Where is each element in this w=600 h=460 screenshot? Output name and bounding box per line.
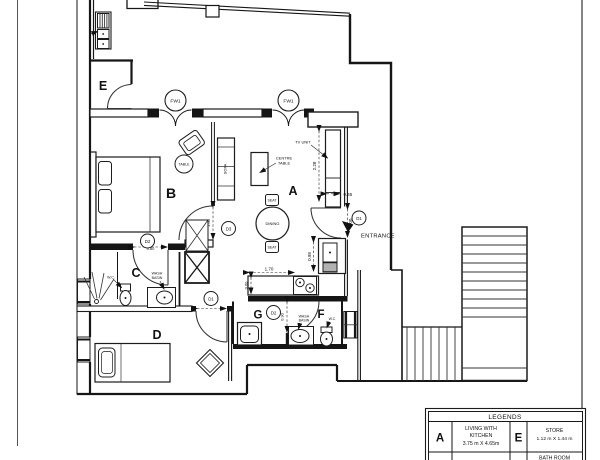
bed-headboard: [91, 152, 97, 237]
dim-living-door: 1.00: [206, 218, 211, 227]
fw1-left-label: FW1: [170, 99, 181, 105]
legend-key-a: A: [436, 433, 444, 445]
entrance-annotation: ENTRANCE: [342, 221, 395, 240]
svg-text:D1: D1: [208, 296, 214, 301]
svg-text:BASIN: BASIN: [152, 276, 163, 280]
legend-header: LEGENDS: [488, 414, 521, 421]
fw1-right-label: FW1: [283, 99, 294, 105]
svg-text:KITCHEN: KITCHEN: [470, 433, 493, 439]
wash-basin-f-icon: [289, 327, 314, 346]
bedroom-d-furniture: [95, 344, 224, 383]
entrance-label: ENTRANCE: [361, 234, 395, 240]
room-label-g: G: [254, 310, 263, 322]
room-label-d: D: [152, 328, 161, 342]
dining-label: DINING: [266, 221, 280, 226]
duct-shaft: [185, 220, 209, 283]
room-label-e: E: [99, 79, 107, 93]
door-tag-utility: D2: [267, 306, 281, 320]
room-label-a: A: [288, 184, 297, 198]
dim-counter-depth: 0.60: [244, 281, 249, 290]
door-tag-bath: D2: [141, 234, 155, 248]
svg-text:TABLE: TABLE: [278, 161, 291, 166]
seat-bottom-label: SEAT: [267, 245, 277, 249]
bathroom-fixtures: W.C. WASH BASIN: [84, 220, 209, 308]
svg-text:D1: D1: [356, 216, 362, 221]
legend-size-e: 1.12 m X 1.44 m: [537, 436, 573, 442]
tv-unit: [326, 130, 341, 207]
kitchen-counters: [248, 239, 346, 296]
window-left-upper-icon: [78, 279, 91, 304]
tv-unit-label: TV UNIT: [295, 140, 311, 145]
dim-sink: 0.98: [307, 252, 312, 261]
svg-text:D3: D3: [226, 226, 232, 231]
room-label-b: B: [166, 185, 176, 201]
living-room-furniture: SOFA CENTRE TABLE TV UNIT SEAT DINING SE…: [218, 130, 341, 253]
dim-tv-length: 2.28: [312, 161, 317, 170]
floor-plan: FW1 FW1: [0, 0, 600, 460]
svg-text:BASIN: BASIN: [299, 319, 310, 323]
door-tag-living: D3: [222, 222, 236, 236]
room-label-c: C: [131, 266, 140, 280]
pillow: [99, 162, 112, 186]
seat-top-label: SEAT: [267, 198, 277, 202]
wash-basin-c-label: WASH: [152, 272, 163, 276]
window-left-lower-icon: [78, 337, 91, 362]
door-tag-bedroom: D1: [204, 292, 218, 306]
dim-tv-depth: 0.45: [344, 192, 353, 197]
toilet-c-icon: [120, 284, 131, 306]
legend-size-a: 3.75 m X 4.65m: [463, 441, 500, 447]
window-toilet-icon: [344, 312, 357, 339]
roof-notch: [206, 6, 219, 18]
svg-text:D2: D2: [145, 239, 151, 244]
wc-bath-label: W.C.: [107, 276, 115, 280]
french-window-right: FW1: [273, 90, 305, 126]
door-tag-entrance: D1: [352, 211, 366, 225]
armchair: [178, 129, 206, 156]
staircase: [402, 227, 527, 381]
pillow: [99, 190, 112, 214]
svg-text:D2: D2: [271, 310, 277, 315]
washing-machine-icon: [238, 323, 262, 346]
wc-f-label: W.C: [329, 317, 336, 321]
sofa-label: SOFA: [223, 163, 228, 174]
round-table-label: TABLE: [178, 163, 190, 167]
corner-table: [197, 350, 224, 377]
french-window-left: FW1: [160, 90, 192, 126]
legend-name-e: STORE: [546, 428, 564, 434]
legend-key-e: E: [515, 433, 523, 445]
wash-basin-c-icon: [148, 288, 176, 308]
dim-counter-length: 1.70: [265, 267, 274, 272]
room-label-f: F: [317, 309, 324, 321]
legend-bathroom: BATH ROOM: [539, 456, 570, 460]
legend-table: LEGENDS A LIVING WITH KITCHEN 3.75 m X 4…: [426, 409, 586, 460]
legend-name-a: LIVING WITH: [465, 426, 497, 432]
toilet-f-icon: [321, 327, 333, 346]
